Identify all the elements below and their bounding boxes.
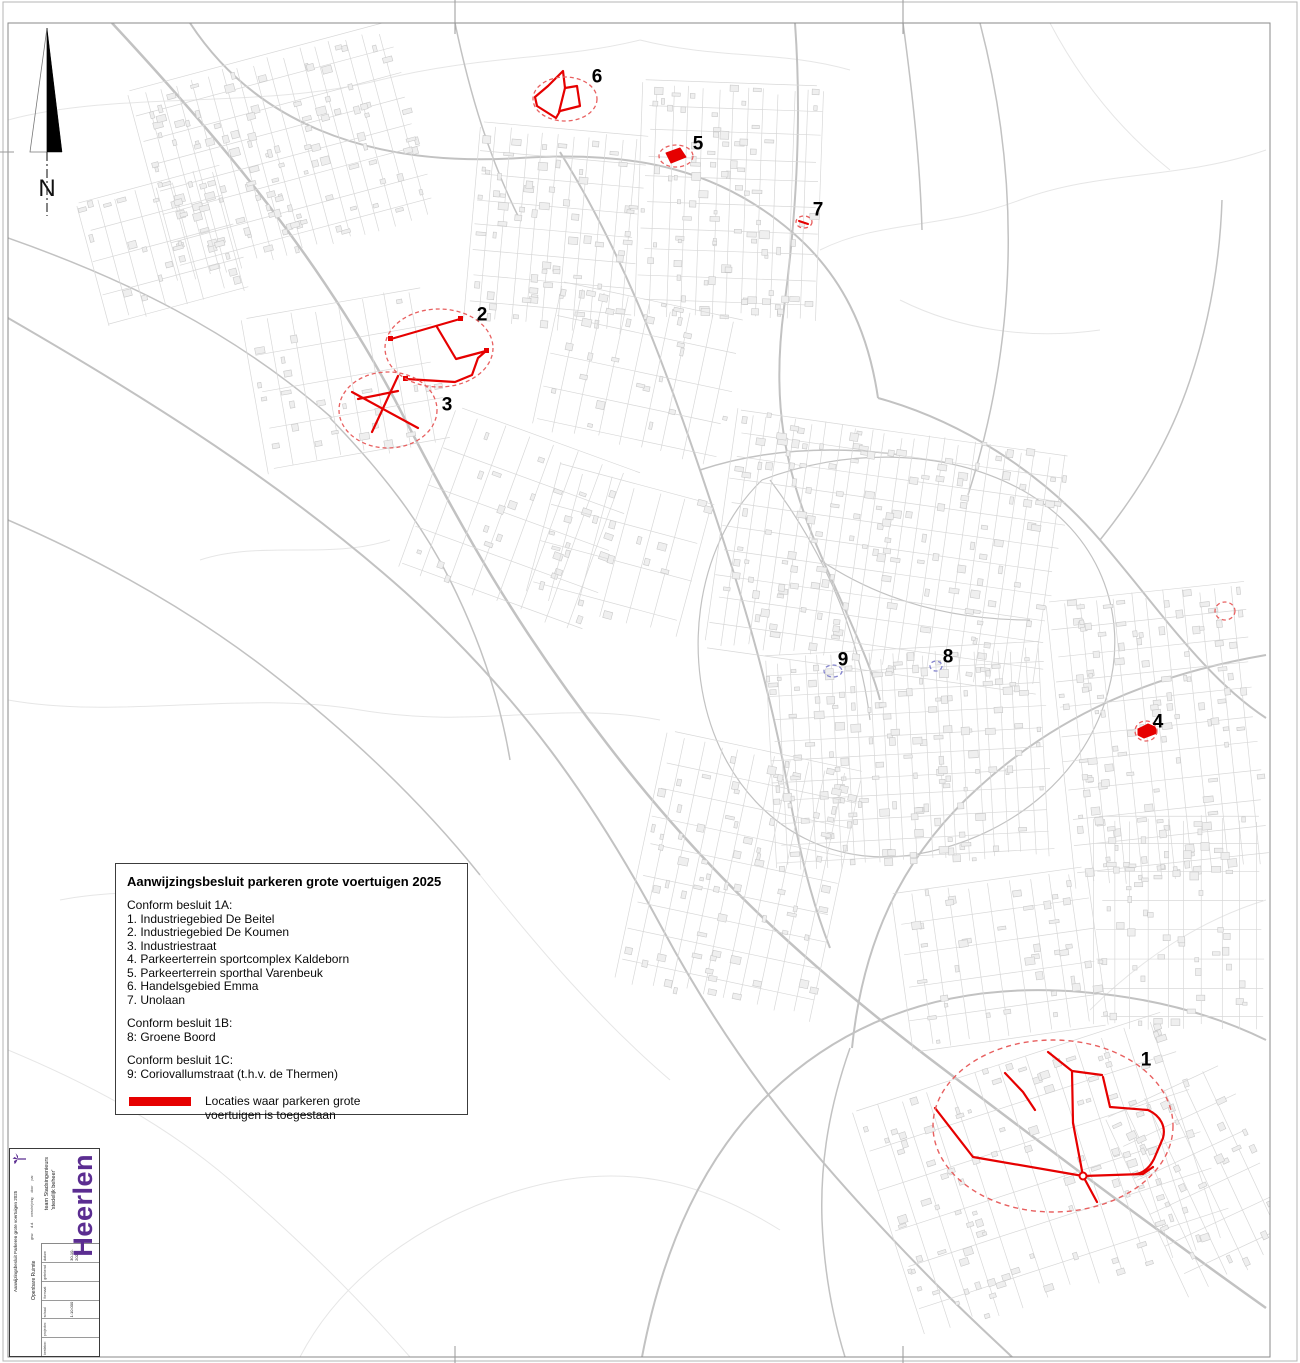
red-zone-2b [437, 327, 486, 359]
map-sheet: N Aanwijzingsbesluit parkeren grote voer… [0, 0, 1300, 1363]
revision-header: par. [30, 1175, 34, 1181]
field-label: besteknr. [43, 1339, 47, 1355]
revision-header: door [30, 1185, 34, 1192]
red-zone-5 [666, 148, 686, 163]
field-value: 1:10.000 [69, 1302, 74, 1318]
map-legend: Aanwijzingsbesluit parkeren grote voertu… [115, 863, 468, 1115]
location-number-5: 5 [693, 135, 704, 154]
north-arrow: N [18, 24, 78, 224]
legend-item: 6. Handelsgebied Emma [127, 980, 456, 994]
field-label: formaat [43, 1283, 47, 1299]
field-label: getekend [43, 1264, 47, 1280]
red-zone-6-inner [559, 88, 565, 112]
location-number-7: 7 [813, 201, 824, 220]
heerlen-wordmark: Heerlen [68, 1154, 98, 1257]
legend-section-2: Conform besluit 1B:8: Groene Boord [127, 1017, 456, 1044]
legend-item: 8: Groene Boord [127, 1031, 456, 1045]
legend-item: 1. Industriegebied De Beitel [127, 913, 456, 927]
legend-section-header: Conform besluit 1B: [127, 1017, 456, 1031]
team-lines: team Stadsingenieurs 'stedelijk beheer' [44, 1157, 57, 1210]
city-map [0, 0, 1300, 1363]
legend-section-3: Conform besluit 1C:9: Coriovallumstraat … [127, 1054, 456, 1081]
north-arrow-left-half [30, 28, 47, 152]
legend-item: 2. Industriegebied De Koumen [127, 926, 456, 940]
revision-header: omschrijving [30, 1198, 34, 1217]
location-number-9: 9 [838, 651, 849, 670]
red-zone-2 [391, 319, 460, 339]
legend-section-header: Conform besluit 1C: [127, 1054, 456, 1068]
title-block: Aanwijzingsbesluit Parkeren grote voertu… [9, 1148, 100, 1357]
red-zone-1c [1005, 1073, 1035, 1110]
title-block-field-schaal: schaal1:10.000 [42, 1300, 99, 1319]
red-zone-swatch [129, 1097, 191, 1106]
drawing-title: Aanwijzingsbesluit Parkeren grote voertu… [13, 1172, 18, 1292]
title-block-field-getekend: getekend [42, 1262, 99, 1281]
team-line-1: team Stadsingenieurs [44, 1157, 51, 1210]
legend-section-1: Conform besluit 1A:1. Industriegebied De… [127, 899, 456, 1007]
field-label: projectnr. [43, 1320, 47, 1336]
location-number-1: 1 [1141, 1051, 1152, 1070]
street-network [8, 22, 1300, 1357]
location-number-4: 4 [1153, 713, 1164, 732]
location-number-8: 8 [943, 648, 954, 667]
red-zone-1b [1072, 1071, 1102, 1075]
north-arrow-right-half [47, 28, 62, 152]
legend-key-label: Locaties waar parkeren grote voertuigen … [205, 1094, 395, 1122]
field-label: datum [43, 1245, 47, 1261]
legend-item: 5. Parkeerterrein sporthal Varenbeuk [127, 967, 456, 981]
title-block-field-projectnr: projectnr. [42, 1318, 99, 1337]
legend-item: 9: Coriovallumstraat (t.h.v. de Thermen) [127, 1068, 456, 1082]
title-block-fields: besteknr.projectnr.schaal1:10.000formaat… [41, 1243, 99, 1356]
location-number-6: 6 [592, 68, 603, 87]
location-number-3: 3 [442, 396, 453, 415]
legend-section-header: Conform besluit 1A: [127, 899, 456, 913]
location-ellipse-3 [339, 372, 437, 448]
legend-key-row: Locaties waar parkeren grote voertuigen … [129, 1094, 456, 1122]
legend-item: 3. Industriestraat [127, 940, 456, 954]
heerlen-logo-icon [12, 1152, 27, 1165]
legend-title: Aanwijzingsbesluit parkeren grote voertu… [127, 874, 456, 889]
north-label: N [38, 175, 55, 202]
department-label: Openbare Ruimte [31, 1261, 37, 1300]
title-block-field-besteknr: besteknr. [42, 1337, 99, 1356]
team-line-2: 'stedelijk beheer' [51, 1157, 58, 1210]
location-ellipses-layer [339, 77, 1235, 1212]
title-block-field-formaat: formaat [42, 1281, 99, 1300]
legend-item: 7. Unolaan [127, 994, 456, 1008]
revision-header-row: gew.d.d.omschrijvingdoorpar. [30, 1175, 34, 1240]
field-label: schaal [43, 1302, 47, 1318]
revision-header: gew. [30, 1233, 34, 1240]
revision-header: d.d. [30, 1222, 34, 1228]
legend-item: 4. Parkeerterrein sportcomplex Kaldeborn [127, 953, 456, 967]
legend-sections: Conform besluit 1A:1. Industriegebied De… [127, 899, 456, 1081]
location-number-2: 2 [477, 306, 488, 325]
